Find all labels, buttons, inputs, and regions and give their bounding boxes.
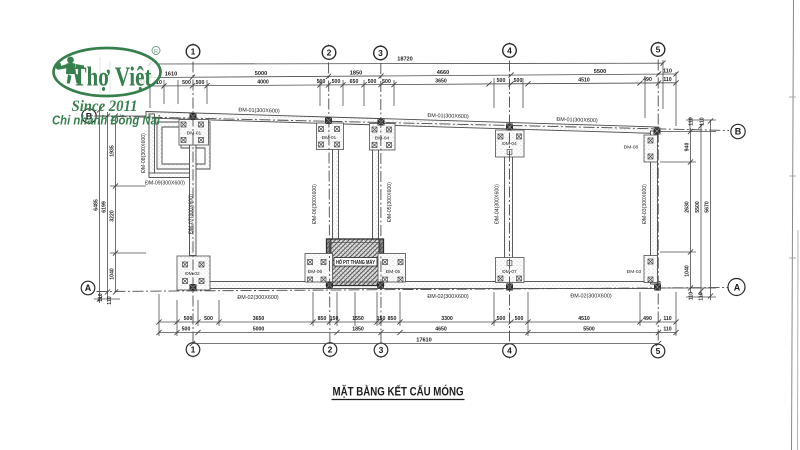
svg-text:ĐM-01(300X600): ĐM-01(300X600) xyxy=(238,107,280,114)
svg-text:150: 150 xyxy=(377,316,386,322)
svg-text:1: 1 xyxy=(191,345,196,355)
svg-text:110: 110 xyxy=(700,117,706,125)
svg-text:ĐM-09(300X600): ĐM-09(300X600) xyxy=(145,181,185,187)
svg-text:ĐM-02(300X600): ĐM-02(300X600) xyxy=(427,294,469,300)
svg-text:ĐM-01(300X600): ĐM-01(300X600) xyxy=(427,113,469,120)
svg-text:1550: 1550 xyxy=(352,316,364,322)
svg-text:500: 500 xyxy=(196,80,205,86)
svg-text:500: 500 xyxy=(497,78,506,84)
svg-text:ĐM-03: ĐM-03 xyxy=(627,269,642,275)
svg-text:5: 5 xyxy=(656,346,661,356)
svg-text:HỐ PIT THANG MÁY: HỐ PIT THANG MÁY xyxy=(336,259,375,266)
svg-text:B: B xyxy=(735,127,742,137)
svg-text:ĐM-05: ĐM-05 xyxy=(386,269,401,275)
svg-text:ĐM-02(300X600): ĐM-02(300X600) xyxy=(570,294,612,300)
svg-text:150: 150 xyxy=(330,316,339,322)
svg-text:ĐM-03(300X600): ĐM-03(300X600) xyxy=(642,184,648,224)
svg-text:A: A xyxy=(85,283,92,293)
svg-text:ĐM-01(300X600): ĐM-01(300X600) xyxy=(556,117,598,124)
svg-text:500: 500 xyxy=(184,316,193,322)
svg-text:3: 3 xyxy=(378,48,383,58)
svg-text:ĐM-06(300X600): ĐM-06(300X600) xyxy=(312,184,318,224)
svg-text:4: 4 xyxy=(507,346,512,356)
svg-text:Thợ Việt: Thợ Việt xyxy=(73,62,152,92)
svg-text:3220: 3220 xyxy=(110,210,116,222)
svg-text:500: 500 xyxy=(317,79,326,85)
svg-text:Chi nhánh Đồng Nai: Chi nhánh Đồng Nai xyxy=(52,114,160,128)
svg-text:500: 500 xyxy=(368,79,377,85)
svg-text:6199: 6199 xyxy=(102,201,108,213)
svg-text:ĐM-01: ĐM-01 xyxy=(187,131,202,137)
svg-text:500: 500 xyxy=(382,79,391,85)
svg-text:R: R xyxy=(154,49,158,55)
svg-text:110: 110 xyxy=(663,316,671,322)
svg-text:1040: 1040 xyxy=(110,268,116,280)
svg-text:3: 3 xyxy=(379,345,384,355)
svg-text:500: 500 xyxy=(204,316,213,322)
svg-text:5500: 5500 xyxy=(583,327,595,333)
svg-text:3650: 3650 xyxy=(435,78,447,84)
svg-text:2: 2 xyxy=(328,345,333,355)
svg-text:ĐM-08: ĐM-08 xyxy=(624,145,639,151)
svg-text:4000: 4000 xyxy=(257,80,269,86)
svg-text:1040: 1040 xyxy=(685,265,691,277)
svg-text:500: 500 xyxy=(514,78,523,84)
svg-text:4650: 4650 xyxy=(435,327,447,333)
svg-text:110: 110 xyxy=(98,293,104,301)
svg-text:850: 850 xyxy=(318,316,327,322)
svg-text:1850: 1850 xyxy=(350,71,362,77)
svg-text:4510: 4510 xyxy=(578,316,590,322)
svg-text:5500: 5500 xyxy=(695,201,701,213)
svg-text:110: 110 xyxy=(663,327,671,333)
svg-text:500: 500 xyxy=(182,80,191,86)
svg-text:ĐM-04: ĐM-04 xyxy=(375,136,390,142)
svg-text:17610: 17610 xyxy=(416,338,432,344)
svg-text:ĐM-07(300X600): ĐM-07(300X600) xyxy=(189,194,195,234)
svg-text:18720: 18720 xyxy=(397,57,413,63)
svg-text:110: 110 xyxy=(107,296,113,304)
svg-text:5: 5 xyxy=(656,45,661,55)
svg-text:ĐM-04(300X600): ĐM-04(300X600) xyxy=(495,184,501,224)
svg-text:4510: 4510 xyxy=(578,78,590,84)
svg-text:500: 500 xyxy=(515,316,524,322)
svg-text:3300: 3300 xyxy=(441,316,453,322)
svg-text:1935: 1935 xyxy=(110,145,116,157)
svg-text:ĐM-06: ĐM-06 xyxy=(308,269,323,275)
svg-text:5670: 5670 xyxy=(705,201,711,213)
svg-text:110: 110 xyxy=(663,69,672,75)
svg-text:500: 500 xyxy=(497,316,506,322)
svg-text:110: 110 xyxy=(663,77,671,83)
svg-text:1610: 1610 xyxy=(165,72,177,78)
svg-text:1850: 1850 xyxy=(352,327,364,333)
svg-text:850: 850 xyxy=(388,316,397,322)
svg-text:490: 490 xyxy=(643,77,652,83)
svg-text:490: 490 xyxy=(643,316,652,322)
svg-text:3650: 3650 xyxy=(253,316,265,322)
svg-text:5000: 5000 xyxy=(253,327,265,333)
svg-text:A: A xyxy=(734,282,741,292)
svg-text:940: 940 xyxy=(685,143,691,152)
svg-text:MẶT BẰNG KẾT CẤU MÓNG: MẶT BẰNG KẾT CẤU MÓNG xyxy=(333,385,464,399)
svg-text:ĐM-08(300X600): ĐM-08(300X600) xyxy=(141,133,147,173)
svg-text:5000: 5000 xyxy=(255,71,267,77)
svg-text:110: 110 xyxy=(699,292,705,300)
svg-text:6485: 6485 xyxy=(94,199,100,211)
svg-text:ĐM-02(300X600): ĐM-02(300X600) xyxy=(237,295,279,301)
svg-text:1: 1 xyxy=(191,47,196,57)
svg-text:4660: 4660 xyxy=(437,70,449,76)
svg-text:650: 650 xyxy=(350,79,359,85)
svg-text:110: 110 xyxy=(689,117,695,125)
svg-text:5500: 5500 xyxy=(594,69,606,75)
svg-text:110: 110 xyxy=(689,292,695,300)
svg-text:500: 500 xyxy=(182,327,191,333)
svg-text:2630: 2630 xyxy=(685,201,691,213)
svg-text:Since 2011: Since 2011 xyxy=(72,98,138,115)
svg-text:2: 2 xyxy=(327,48,332,58)
svg-text:500: 500 xyxy=(332,79,341,85)
svg-text:ĐM-05(300X600): ĐM-05(300X600) xyxy=(387,182,393,222)
svg-text:4: 4 xyxy=(507,46,512,56)
